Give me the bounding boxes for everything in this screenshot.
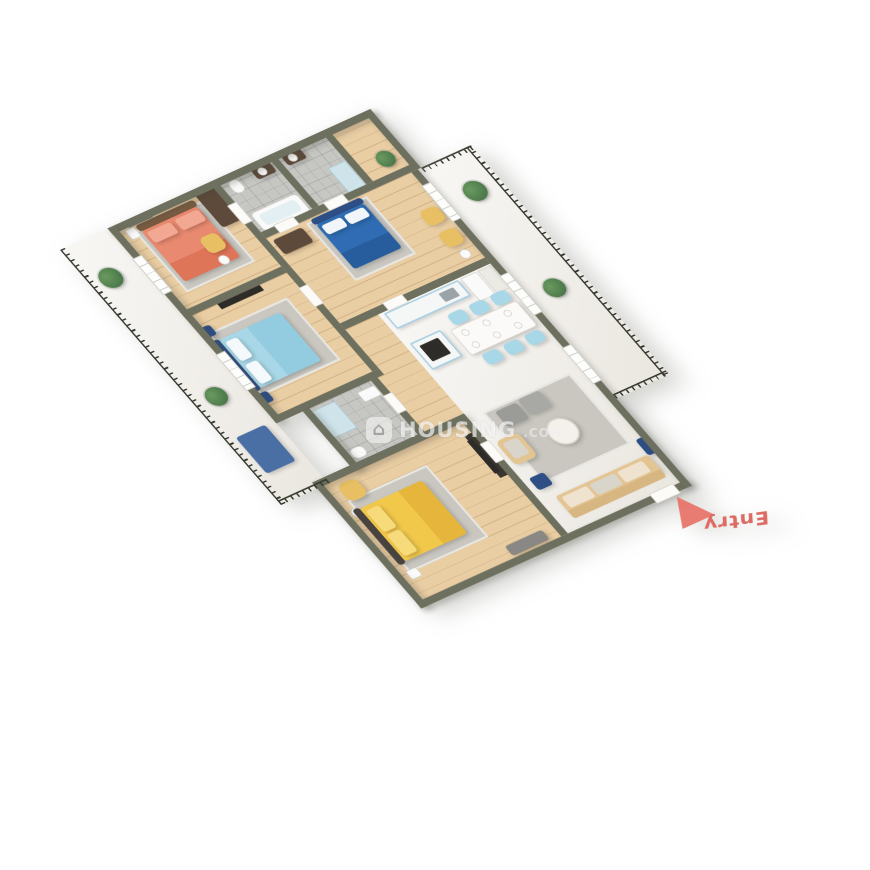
housing-watermark: ⌂ HOUSING .COM [366,417,563,443]
floorplan-stage: Entry ⌂ HOUSING .COM [0,0,870,870]
watermark-tld: .COM [523,426,563,440]
watermark-brand: HOUSING [399,418,516,442]
apartment-3d-floorplan: Entry [60,64,833,670]
house-icon: ⌂ [366,417,392,443]
